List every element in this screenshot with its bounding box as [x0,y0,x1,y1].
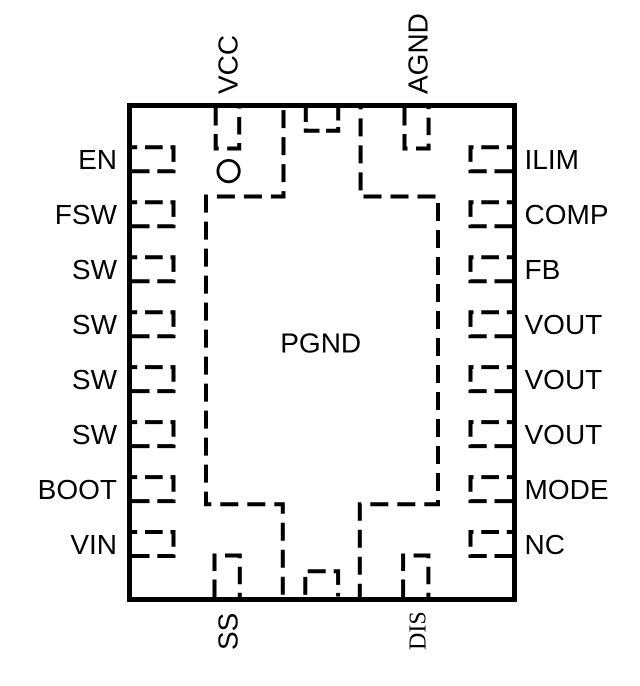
svg-text:SW: SW [72,364,118,395]
svg-text:SS: SS [213,613,244,650]
svg-text:DIS: DIS [406,611,432,650]
svg-text:FSW: FSW [55,199,118,230]
svg-text:COMP: COMP [525,199,609,230]
svg-text:SW: SW [72,254,118,285]
svg-text:MODE: MODE [525,474,609,505]
svg-text:AGND: AGND [403,13,434,94]
svg-text:VCC: VCC [213,35,244,94]
svg-text:VOUT: VOUT [525,364,603,395]
svg-text:PGND: PGND [280,328,361,359]
svg-text:SW: SW [72,419,118,450]
svg-text:VOUT: VOUT [525,309,603,340]
svg-text:ILIM: ILIM [525,144,579,175]
svg-text:SW: SW [72,309,118,340]
svg-text:BOOT: BOOT [38,474,117,505]
svg-text:VOUT: VOUT [525,419,603,450]
svg-text:VIN: VIN [70,529,117,560]
svg-text:NC: NC [525,529,565,560]
svg-text:FB: FB [525,254,561,285]
svg-text:EN: EN [78,144,117,175]
